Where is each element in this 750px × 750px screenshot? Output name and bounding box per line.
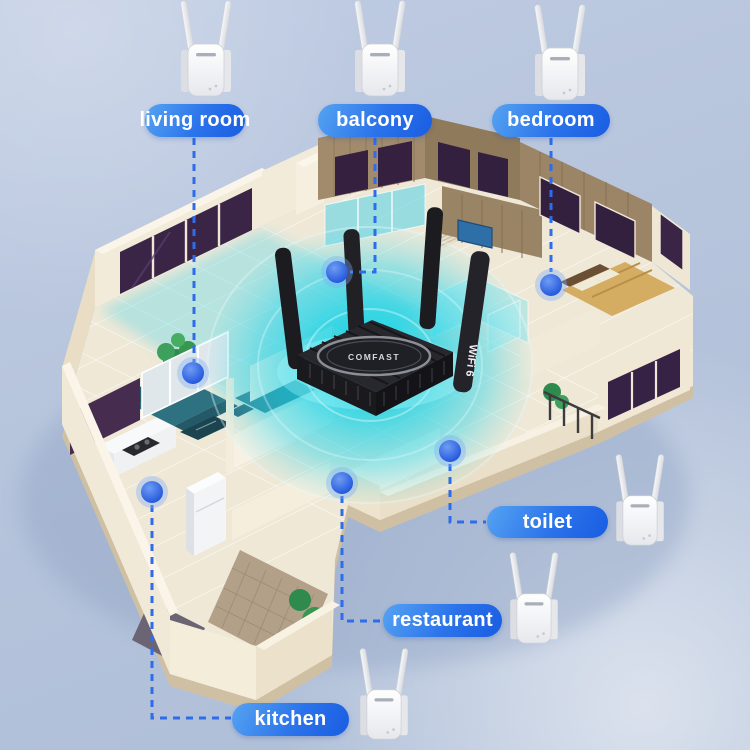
wifi-extender-living-room — [180, 0, 231, 96]
signal-dot-bedroom — [535, 269, 567, 301]
signal-dot-restaurant — [326, 467, 358, 499]
signal-dot-living-room — [177, 357, 209, 389]
signal-dot-kitchen — [136, 476, 168, 508]
room-label-restaurant: restaurant — [383, 604, 502, 637]
room-label-living-room: living room — [145, 104, 245, 137]
room-label-bedroom: bedroom — [492, 104, 610, 137]
room-label-balcony: balcony — [318, 104, 432, 137]
room-label-text: balcony — [336, 109, 414, 132]
room-label-kitchen: kitchen — [232, 703, 349, 736]
room-label-text: living room — [139, 109, 250, 132]
scene-background: WiFi 6 COMFAST — [0, 0, 750, 750]
room-label-toilet: toilet — [487, 506, 608, 538]
room-label-text: restaurant — [392, 609, 493, 632]
room-label-text: toilet — [523, 511, 573, 534]
signal-dot-balcony — [321, 256, 353, 288]
router-brand-logo: COMFAST — [348, 352, 400, 362]
room-label-text: bedroom — [507, 109, 595, 132]
room-label-text: kitchen — [254, 708, 326, 731]
wifi-extender-bedroom — [534, 4, 585, 100]
wifi-extender-balcony — [354, 0, 405, 96]
signal-dot-toilet — [434, 435, 466, 467]
